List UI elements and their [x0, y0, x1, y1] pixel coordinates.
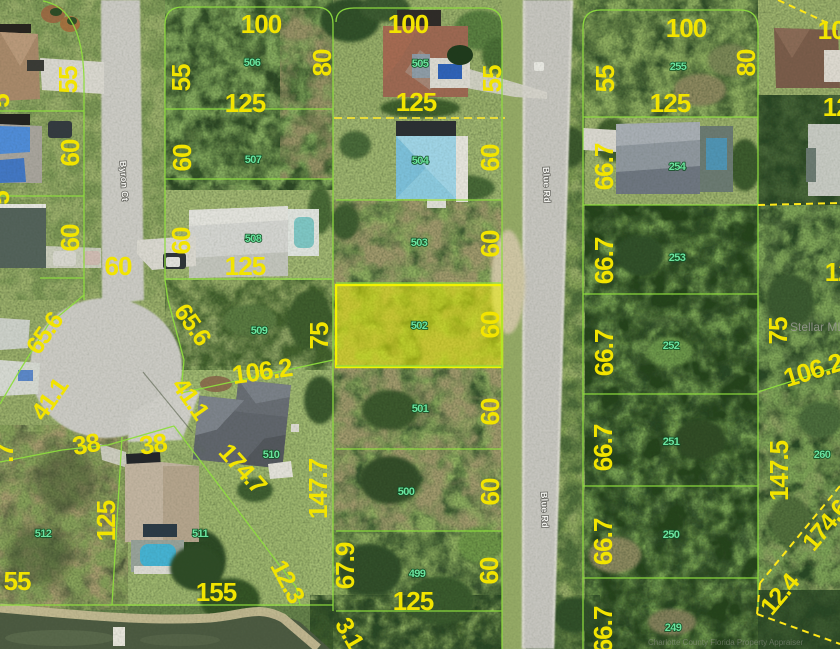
svg-text:508: 508 [245, 233, 262, 245]
svg-text:60: 60 [475, 144, 505, 171]
svg-text:499: 499 [409, 568, 426, 580]
svg-text:66.7: 66.7 [589, 329, 619, 376]
svg-text:75: 75 [763, 317, 793, 344]
svg-text:66.7: 66.7 [589, 237, 619, 284]
svg-text:251: 251 [663, 436, 680, 448]
svg-text:260: 260 [814, 449, 831, 461]
svg-text:125: 125 [225, 88, 266, 118]
svg-text:60: 60 [55, 224, 85, 251]
svg-text:66.7: 66.7 [589, 143, 619, 190]
svg-text:155: 155 [196, 577, 237, 607]
svg-text:147.7: 147.7 [303, 458, 333, 519]
svg-text:Blue Rd: Blue Rd [541, 167, 552, 203]
svg-text:255: 255 [670, 61, 687, 73]
svg-text:.7: .7 [0, 443, 19, 463]
svg-text:503: 503 [411, 237, 428, 249]
svg-text:507: 507 [245, 154, 262, 166]
svg-text:66.7: 66.7 [588, 424, 618, 471]
svg-text:506: 506 [244, 57, 261, 69]
svg-text:125: 125 [393, 586, 434, 616]
svg-text:67.9: 67.9 [330, 542, 360, 589]
svg-text:66.7: 66.7 [588, 606, 618, 649]
svg-text:Blue Rd: Blue Rd [539, 492, 550, 528]
svg-text:100: 100 [388, 9, 429, 39]
svg-text:125: 125 [825, 257, 840, 287]
svg-text:100: 100 [241, 9, 282, 39]
svg-text:253: 253 [669, 252, 686, 264]
svg-text:38: 38 [138, 427, 169, 461]
svg-text:60: 60 [475, 230, 505, 257]
svg-text:502: 502 [411, 320, 428, 332]
svg-text:80: 80 [731, 49, 761, 76]
svg-text:60: 60 [55, 139, 85, 166]
svg-text:125: 125 [396, 87, 437, 117]
svg-text:Byron Ct: Byron Ct [118, 161, 130, 202]
svg-text:60: 60 [167, 144, 197, 171]
svg-text:100: 100 [666, 13, 707, 43]
svg-text:510: 510 [263, 449, 280, 461]
svg-text:60: 60 [474, 557, 504, 584]
svg-text:55: 55 [477, 65, 507, 92]
svg-text:5: 5 [0, 191, 15, 205]
svg-text:60: 60 [105, 251, 132, 281]
svg-text:55: 55 [53, 66, 83, 93]
svg-text:254: 254 [669, 161, 687, 173]
svg-text:60: 60 [166, 227, 196, 254]
svg-text:125: 125 [650, 88, 691, 118]
svg-text:Charlotte County Florida Prope: Charlotte County Florida Property Apprai… [648, 638, 804, 647]
svg-text:125: 125 [225, 251, 266, 281]
svg-text:55: 55 [590, 65, 620, 92]
svg-text:252: 252 [663, 340, 680, 352]
svg-text:125: 125 [91, 500, 121, 541]
svg-text:147.5: 147.5 [764, 440, 794, 501]
svg-text:505: 505 [412, 58, 429, 70]
svg-text:75: 75 [304, 322, 334, 349]
svg-text:501: 501 [412, 403, 429, 415]
svg-text:66.7: 66.7 [588, 518, 618, 565]
svg-text:60: 60 [475, 398, 505, 425]
svg-text:512: 512 [35, 528, 52, 540]
svg-text:125: 125 [823, 92, 840, 122]
svg-text:5: 5 [0, 94, 15, 108]
svg-text:250: 250 [663, 529, 680, 541]
svg-text:504: 504 [412, 155, 430, 167]
svg-text:60: 60 [475, 311, 505, 338]
svg-text:511: 511 [192, 528, 208, 540]
svg-text:Stellar MLS: Stellar MLS [790, 320, 840, 334]
svg-text:509: 509 [251, 325, 268, 337]
svg-text:60: 60 [475, 478, 505, 505]
svg-text:55: 55 [4, 566, 31, 596]
svg-text:80: 80 [307, 49, 337, 76]
svg-text:100: 100 [818, 15, 840, 45]
svg-text:500: 500 [398, 486, 415, 498]
svg-text:55: 55 [166, 64, 196, 91]
svg-text:249: 249 [665, 622, 682, 634]
